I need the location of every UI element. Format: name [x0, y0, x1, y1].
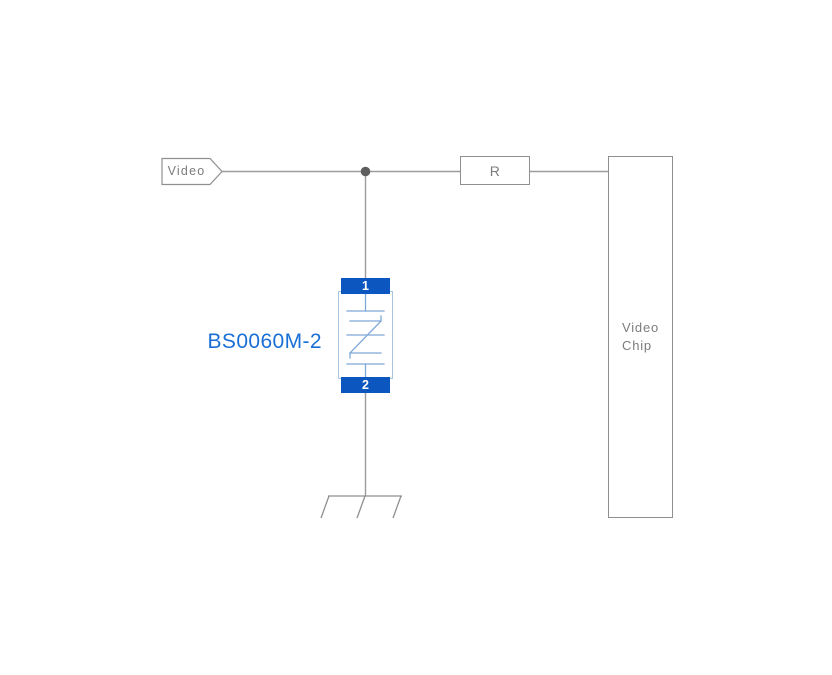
- tvs-pin-1: 1: [341, 278, 390, 294]
- junction-dot: [361, 167, 371, 177]
- video-chip-box: Video Chip: [608, 156, 673, 518]
- video-port-label: Video: [162, 158, 211, 185]
- circuit-diagram: Video R Video Chip 1 2 BS0060M-2: [0, 0, 832, 675]
- ground-symbol: [321, 496, 402, 518]
- schematic-wires-layer: [0, 0, 832, 675]
- tvs-pin-2: 2: [341, 377, 390, 393]
- video-chip-label-line2: Chip: [622, 337, 672, 355]
- tvs-part-number-label: BS0060M-2: [178, 330, 322, 354]
- resistor-label: R: [490, 163, 501, 179]
- resistor-box: R: [460, 156, 530, 185]
- video-chip-label-line1: Video: [622, 319, 672, 337]
- tvs-component-body: [338, 291, 393, 379]
